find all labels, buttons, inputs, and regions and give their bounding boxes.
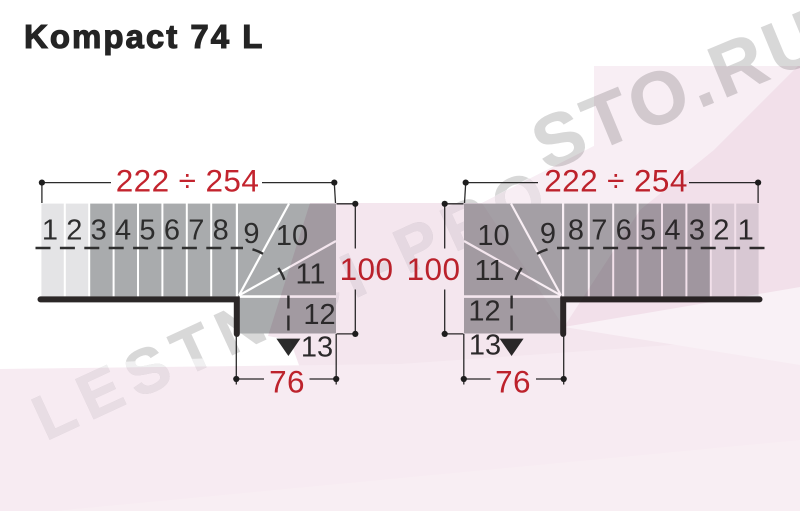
svg-text:7: 7 <box>188 215 204 247</box>
svg-text:Kompact 74 L: Kompact 74 L <box>24 18 264 55</box>
svg-text:6: 6 <box>164 215 180 247</box>
svg-text:8: 8 <box>213 215 229 247</box>
svg-text:1: 1 <box>42 215 58 247</box>
svg-text:2: 2 <box>66 215 82 247</box>
svg-text:4: 4 <box>115 215 131 247</box>
svg-text:222 ÷ 254: 222 ÷ 254 <box>116 163 260 199</box>
svg-text:3: 3 <box>91 215 107 247</box>
svg-text:9: 9 <box>243 218 259 250</box>
svg-text:5: 5 <box>139 215 155 247</box>
